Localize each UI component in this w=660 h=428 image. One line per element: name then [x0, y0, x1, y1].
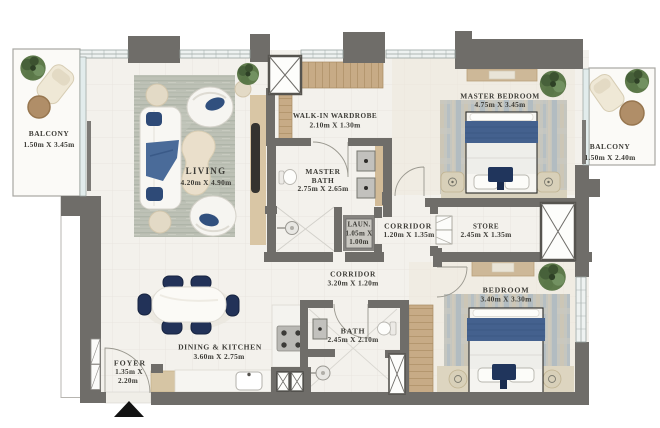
svg-text:DINING & KITCHEN: DINING & KITCHEN — [178, 343, 262, 352]
svg-text:2.10m X 1.30m: 2.10m X 1.30m — [309, 121, 361, 130]
svg-text:FOYER: FOYER — [114, 359, 146, 368]
svg-text:4.75m X 3.45m: 4.75m X 3.45m — [474, 100, 526, 109]
svg-text:1.50m X 2.40m: 1.50m X 2.40m — [584, 153, 636, 162]
svg-text:2.20m: 2.20m — [118, 377, 138, 385]
svg-text:CORRIDOR: CORRIDOR — [330, 270, 376, 279]
svg-text:3.60m X 2.75m: 3.60m X 2.75m — [193, 352, 245, 361]
svg-text:BALCONY: BALCONY — [29, 129, 70, 138]
svg-text:2.75m X 2.65m: 2.75m X 2.65m — [297, 184, 349, 193]
svg-text:BEDROOM: BEDROOM — [483, 286, 530, 295]
svg-text:3.20m X 1.20m: 3.20m X 1.20m — [327, 279, 379, 288]
svg-text:1.35m X: 1.35m X — [115, 368, 143, 376]
svg-text:2.45m X 2.10m: 2.45m X 2.10m — [327, 335, 379, 344]
svg-text:1.00m: 1.00m — [349, 238, 369, 246]
svg-text:LIVING: LIVING — [186, 166, 227, 176]
svg-text:3.40m X 3.30m: 3.40m X 3.30m — [480, 295, 532, 304]
svg-text:1.20m X 1.35m: 1.20m X 1.35m — [383, 230, 435, 239]
svg-text:1.50m X 3.45m: 1.50m X 3.45m — [23, 140, 75, 149]
svg-text:1.05m X: 1.05m X — [346, 230, 373, 238]
svg-text:WALK-IN WARDROBE: WALK-IN WARDROBE — [293, 112, 377, 120]
svg-text:MASTER: MASTER — [305, 167, 340, 176]
svg-text:4.20m X 4.90m: 4.20m X 4.90m — [180, 178, 232, 187]
svg-text:BALCONY: BALCONY — [590, 142, 631, 151]
svg-text:LAUN.: LAUN. — [347, 221, 370, 229]
svg-text:2.45m X 1.35m: 2.45m X 1.35m — [460, 230, 512, 239]
